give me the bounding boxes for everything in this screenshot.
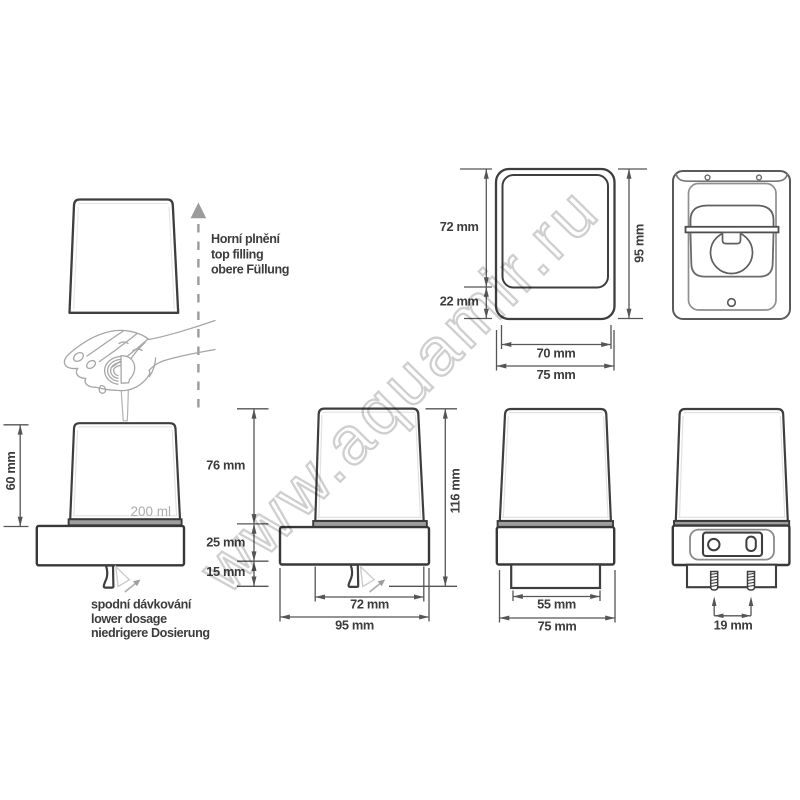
svg-text:60 mm: 60 mm — [3, 452, 18, 491]
svg-text:95 mm: 95 mm — [335, 618, 374, 633]
svg-text:19 mm: 19 mm — [714, 618, 753, 633]
svg-text:Horní plnění: Horní plnění — [211, 232, 281, 246]
svg-text:72 mm: 72 mm — [350, 597, 389, 612]
svg-text:76 mm: 76 mm — [206, 458, 245, 473]
svg-text:spodní dávkování: spodní dávkování — [91, 597, 192, 611]
svg-text:116 mm: 116 mm — [448, 469, 463, 514]
svg-text:obere Füllung: obere Füllung — [211, 263, 289, 277]
svg-text:55 mm: 55 mm — [537, 597, 576, 612]
svg-text:lower dosage: lower dosage — [91, 612, 167, 626]
svg-text:top filling: top filling — [211, 247, 263, 261]
svg-text:95 mm: 95 mm — [632, 224, 647, 263]
svg-text:72 mm: 72 mm — [440, 219, 479, 234]
svg-text:70 mm: 70 mm — [537, 345, 576, 360]
svg-text:niedrigere Dosierung: niedrigere Dosierung — [91, 626, 210, 640]
svg-text:75 mm: 75 mm — [538, 619, 577, 634]
svg-text:200 ml: 200 ml — [131, 504, 172, 519]
svg-text:75 mm: 75 mm — [537, 367, 576, 382]
